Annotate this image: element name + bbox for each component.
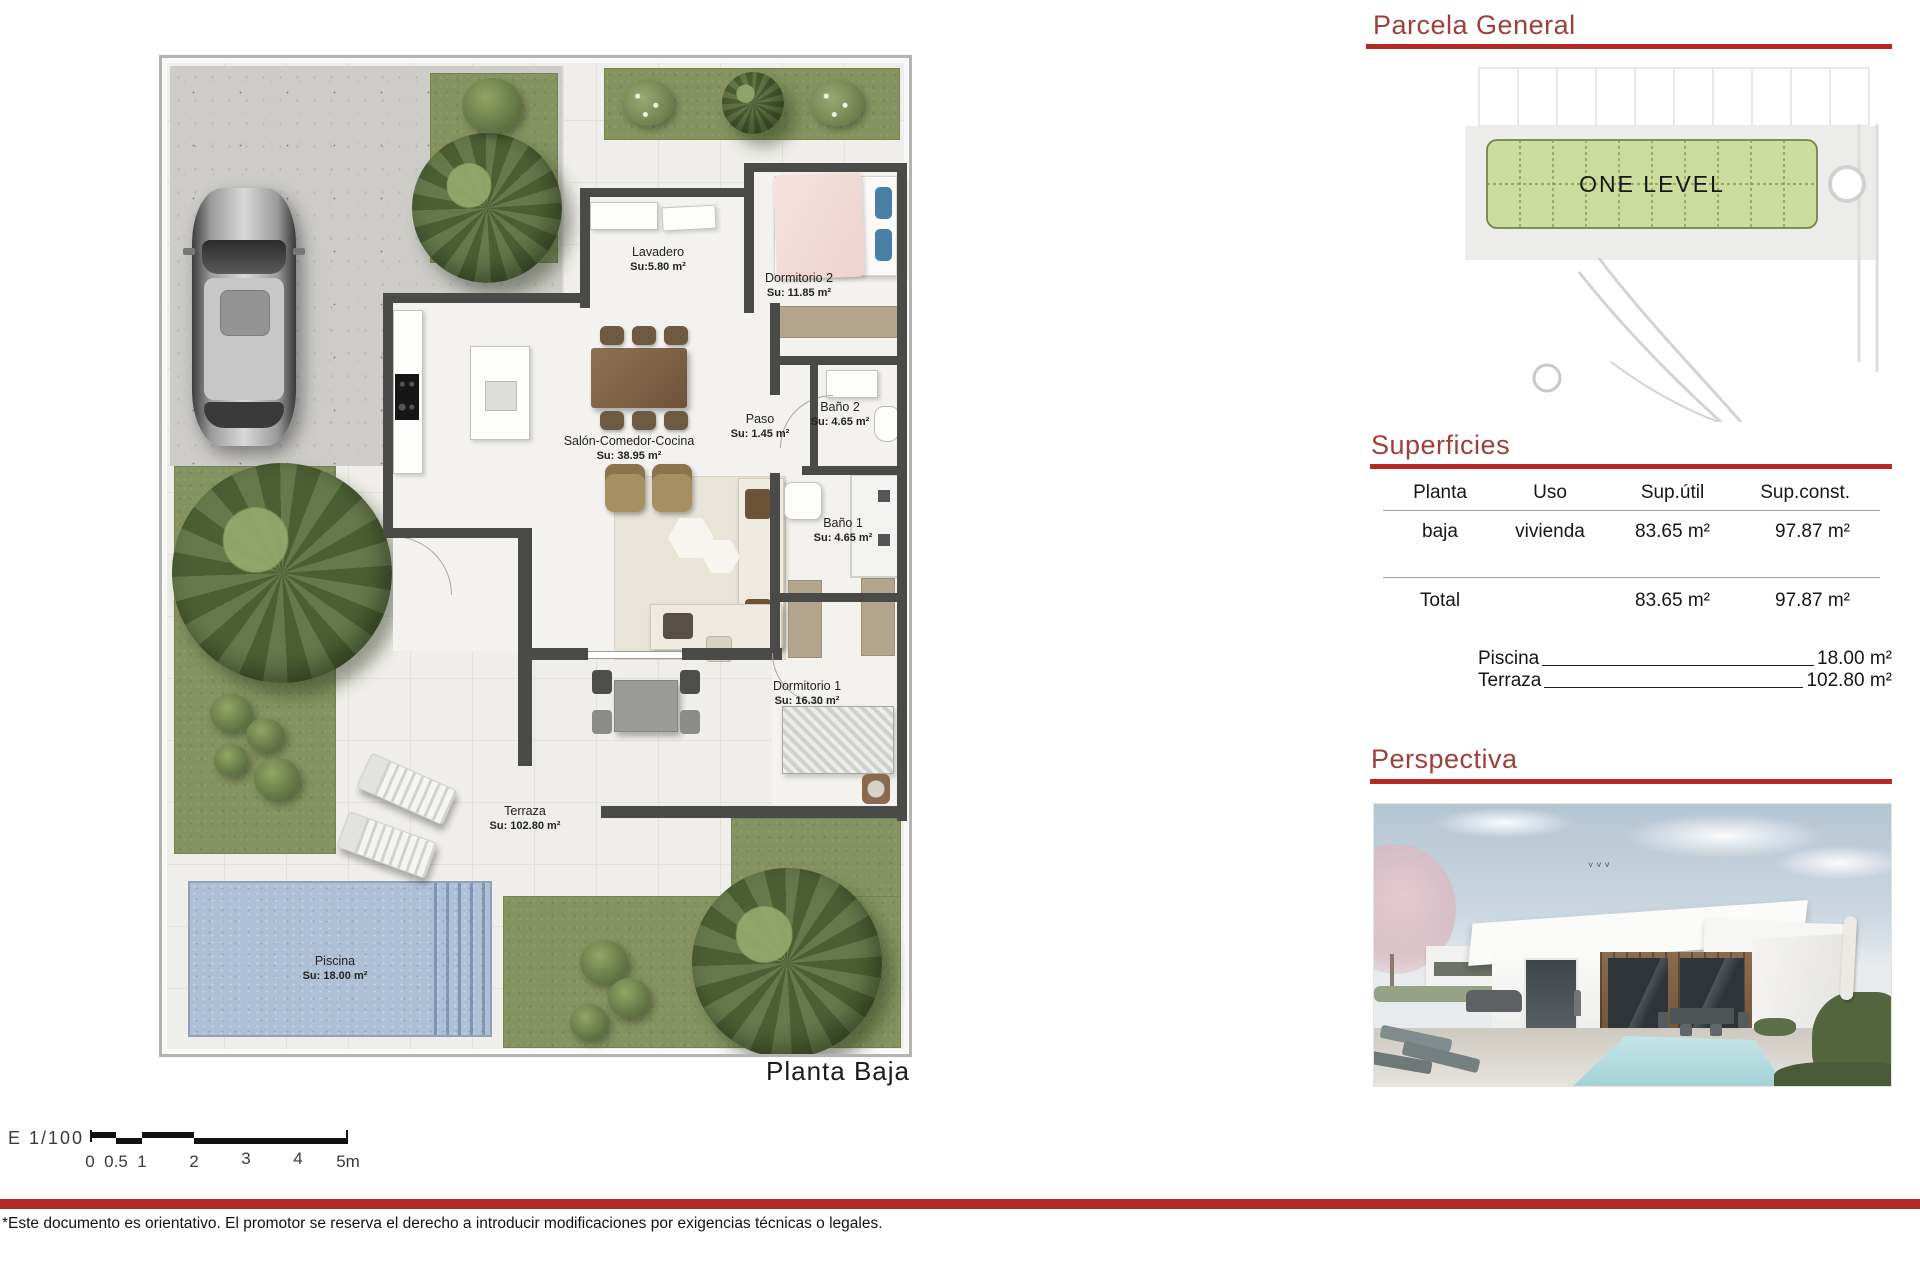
- wall: [770, 473, 780, 653]
- cell-uso: vivienda: [1490, 521, 1610, 543]
- bed-dormitorio1: [782, 706, 894, 774]
- dining-chair-3: [664, 326, 688, 345]
- room-area: Su: 18.00 m²: [273, 969, 397, 983]
- total-sup-const: 97.87 m²: [1735, 590, 1850, 612]
- sliding-glass-door: [588, 651, 682, 659]
- kitchen-sink: [485, 381, 517, 411]
- dining-chair-5: [632, 411, 656, 430]
- outdoor-table: [614, 680, 678, 732]
- sun-lounger-1: [356, 753, 457, 826]
- scale-segment: [90, 1132, 116, 1138]
- birds: ˅˅˅: [1588, 860, 1628, 870]
- table-row: baja vivienda 83.65 m² 97.87 m²: [1390, 521, 1850, 543]
- cloud: [1434, 808, 1574, 838]
- cloud: [1774, 846, 1892, 880]
- extras-block: Piscina 18.00 m² Terraza 102.80 m²: [1478, 648, 1892, 692]
- bush-left-2: [246, 718, 284, 752]
- room-label-dormitorio2: Dormitorio 2 Su: 11.85 m²: [738, 270, 860, 301]
- bush-left-3: [214, 744, 248, 776]
- palm-tree-top: [412, 133, 562, 283]
- car-sunroof: [220, 290, 270, 336]
- room-area: Su: 4.65 m²: [788, 415, 892, 429]
- section-underline-superficies: [1370, 464, 1892, 469]
- wall: [802, 466, 906, 475]
- room-area: Su: 16.30 m²: [746, 694, 868, 708]
- outdoor-chair-3: [680, 670, 700, 694]
- bush-bottom-3: [570, 1004, 608, 1040]
- dotted-leader: [1542, 665, 1814, 666]
- roundabout: [1830, 167, 1864, 201]
- extra-label: Terraza: [1478, 670, 1541, 692]
- dining-table: [591, 348, 687, 408]
- wall: [780, 593, 906, 602]
- room-label-lavadero: Lavadero Su:5.80 m²: [598, 244, 718, 275]
- table-rule: [1383, 577, 1880, 578]
- total-sup-util: 83.65 m²: [1610, 590, 1735, 612]
- wall: [601, 806, 907, 818]
- dining-chair-4: [600, 411, 624, 430]
- room-area: Su: 102.80 m²: [463, 819, 587, 833]
- wood-facade: [1600, 952, 1752, 1040]
- car-rear-window: [204, 402, 284, 428]
- col-header-sup-util: Sup.útil: [1610, 482, 1735, 504]
- room-name: Lavadero: [598, 244, 718, 260]
- scale-segment: [116, 1138, 142, 1144]
- room-label-bano1: Baño 1 Su: 4.65 m²: [791, 515, 895, 546]
- outdoor-chair-2: [592, 710, 612, 734]
- flower-bush-1: [622, 80, 674, 126]
- scale-tick: 4: [293, 1149, 302, 1169]
- car-mirror-left: [183, 248, 195, 255]
- car-mirror-right: [293, 248, 305, 255]
- palm-tree-bottom: [692, 868, 882, 1057]
- patio-chair: [1658, 1012, 1669, 1028]
- flower-bush-2: [810, 80, 864, 126]
- scale-end-tick-right: [346, 1130, 348, 1142]
- extra-value: 102.80 m²: [1806, 670, 1892, 692]
- patio-chair: [1680, 1024, 1692, 1036]
- nightstand-dormitorio1: [862, 774, 890, 804]
- footer-disclaimer: *Este documento es orientativo. El promo…: [2, 1215, 883, 1233]
- floor-plan: Lavadero Su:5.80 m² Dormitorio 2 Su: 11.…: [159, 55, 912, 1057]
- shower-fixture-1: [878, 490, 890, 502]
- scale-tick: 5m: [336, 1152, 360, 1172]
- bed2-pillow-1: [875, 187, 892, 219]
- small-tree-top-strip: [722, 72, 784, 134]
- total-uso-empty: [1490, 590, 1610, 612]
- outdoor-chair-4: [680, 710, 700, 734]
- pool-steps: [434, 883, 490, 1035]
- room-name: Baño 1: [791, 515, 895, 531]
- superficies-table: Planta Uso Sup.útil Sup.const. baja vivi…: [1390, 482, 1850, 612]
- wall: [383, 528, 529, 538]
- dining-chair-6: [664, 411, 688, 430]
- armchair-1: [605, 464, 645, 512]
- room-name: Dormitorio 1: [746, 678, 868, 694]
- bush-bottom-2: [608, 978, 650, 1018]
- bed2-pillow-2: [875, 229, 892, 261]
- wall: [526, 648, 588, 660]
- room-name: Piscina: [273, 953, 397, 969]
- wall: [682, 648, 782, 660]
- wall: [744, 163, 906, 172]
- car-top-view: [192, 188, 296, 446]
- scale-segment: [142, 1132, 194, 1138]
- runner-rug-2: [861, 578, 895, 656]
- section-title-parcela: Parcela General: [1373, 10, 1576, 41]
- dining-chair-1: [600, 326, 624, 345]
- bed2-duvet: [773, 172, 865, 279]
- room-label-piscina: Piscina Su: 18.00 m²: [273, 953, 397, 984]
- outdoor-chair-1: [592, 670, 612, 694]
- bush-left-1: [210, 694, 252, 732]
- extra-value: 18.00 m²: [1817, 648, 1892, 670]
- col-header-sup-const: Sup.const.: [1735, 482, 1850, 504]
- room-name: Baño 2: [788, 399, 892, 415]
- room-label-dormitorio1: Dormitorio 1 Su: 16.30 m²: [746, 678, 868, 709]
- wall: [518, 528, 532, 766]
- wall: [897, 163, 907, 821]
- table-rule: [1383, 510, 1880, 511]
- total-label: Total: [1390, 590, 1490, 612]
- wall: [383, 293, 393, 538]
- car-windshield: [202, 240, 286, 274]
- scale-segment: [194, 1138, 348, 1144]
- bush-left-4: [254, 758, 300, 800]
- section-underline-perspectiva: [1370, 779, 1892, 784]
- room-name: Salón-Comedor-Cocina: [524, 433, 734, 449]
- dining-chair-2: [632, 326, 656, 345]
- extras-row-terraza: Terraza 102.80 m²: [1478, 670, 1892, 692]
- scale-bar: 0 0.5 1 2 3 4 5m: [90, 1132, 348, 1146]
- room-label-terraza: Terraza Su: 102.80 m²: [463, 803, 587, 834]
- room-area: Su:5.80 m²: [598, 260, 718, 274]
- one-level-label: ONE LEVEL: [1579, 171, 1725, 197]
- room-area: Su: 38.95 m²: [524, 449, 734, 463]
- dresser-dormitorio2: [778, 306, 898, 338]
- shrubs-right: [1774, 1062, 1892, 1087]
- scale-label: E 1/100: [8, 1128, 84, 1149]
- wall: [772, 356, 906, 365]
- cell-planta: baja: [1390, 521, 1490, 543]
- extra-label: Piscina: [1478, 648, 1539, 670]
- bed-dormitorio2: [774, 176, 904, 276]
- room-name: Dormitorio 2: [738, 270, 860, 286]
- table-header-row: Planta Uso Sup.útil Sup.const.: [1390, 482, 1850, 504]
- wall: [580, 188, 752, 197]
- room-name: Paso: [718, 411, 802, 427]
- col-header-planta: Planta: [1390, 482, 1490, 504]
- sofa-cushion-1: [745, 489, 771, 519]
- shrub-center: [1754, 1018, 1796, 1036]
- scale-tick: 0.5: [104, 1152, 128, 1172]
- extras-row-piscina: Piscina 18.00 m²: [1478, 648, 1892, 670]
- room-area: Su: 11.85 m²: [738, 286, 860, 300]
- scale-tick: 2: [189, 1152, 198, 1172]
- room-name: Terraza: [463, 803, 587, 819]
- plan-caption: Planta Baja: [766, 1056, 910, 1087]
- scale-tick: 1: [137, 1152, 146, 1172]
- footer-accent-bar: [0, 1199, 1920, 1209]
- section-underline-parcela: [1366, 44, 1892, 49]
- runner-rug-1: [788, 580, 822, 658]
- room-label-bano2: Baño 2 Su: 4.65 m²: [788, 399, 892, 430]
- large-tree-left: [172, 463, 392, 683]
- cell-sup-util: 83.65 m²: [1610, 521, 1735, 543]
- table-total-row: Total 83.65 m² 97.87 m²: [1390, 590, 1850, 612]
- small-roundabout: [1534, 365, 1560, 391]
- bush-bottom-1: [580, 940, 628, 984]
- kitchen-island: [470, 346, 530, 440]
- perspective-rendering: ˅˅˅: [1373, 803, 1892, 1087]
- parked-car: [1466, 990, 1522, 1012]
- patio-chair: [1710, 1024, 1722, 1036]
- patio-table: [1670, 1008, 1734, 1024]
- wall: [383, 293, 585, 303]
- cooktop: [395, 374, 419, 420]
- room-area: Su: 4.65 m²: [791, 531, 895, 545]
- sofa-cushion-3: [663, 613, 693, 639]
- site-plan-map: ONE LEVEL: [1451, 62, 1892, 422]
- armchair-2: [652, 464, 692, 512]
- cell-sup-const: 97.87 m²: [1735, 521, 1850, 543]
- person-silhouette: [1574, 990, 1581, 1016]
- scale-tick: 3: [241, 1149, 250, 1169]
- bathroom2-vanity: [826, 370, 878, 398]
- section-title-superficies: Superficies: [1371, 430, 1510, 461]
- bush-top: [462, 78, 522, 133]
- scale-tick: 0: [85, 1152, 94, 1172]
- wall: [580, 188, 590, 308]
- dotted-leader: [1544, 687, 1803, 688]
- washer: [590, 202, 658, 230]
- section-title-perspectiva: Perspectiva: [1371, 744, 1518, 775]
- col-header-uso: Uso: [1490, 482, 1610, 504]
- wall: [770, 303, 780, 395]
- sun-lounger-2: [336, 811, 437, 879]
- dryer: [661, 205, 716, 232]
- patio-chair: [1738, 1012, 1749, 1028]
- room-label-salon: Salón-Comedor-Cocina Su: 38.95 m²: [524, 433, 734, 464]
